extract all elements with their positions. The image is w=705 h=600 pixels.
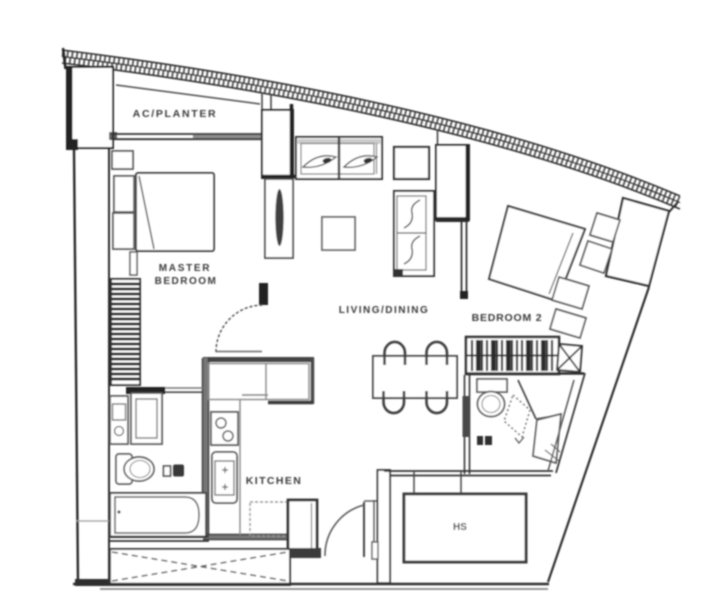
svg-text:BEDROOM 2: BEDROOM 2 (472, 312, 543, 324)
svg-text:HS: HS (453, 522, 467, 533)
svg-text:AC/PLANTER: AC/PLANTER (133, 108, 218, 120)
svg-text:BEDROOM: BEDROOM (155, 276, 218, 287)
svg-text:KITCHEN: KITCHEN (246, 475, 302, 487)
svg-text:MASTER: MASTER (159, 263, 211, 274)
svg-text:LIVING/DINING: LIVING/DINING (339, 305, 430, 316)
